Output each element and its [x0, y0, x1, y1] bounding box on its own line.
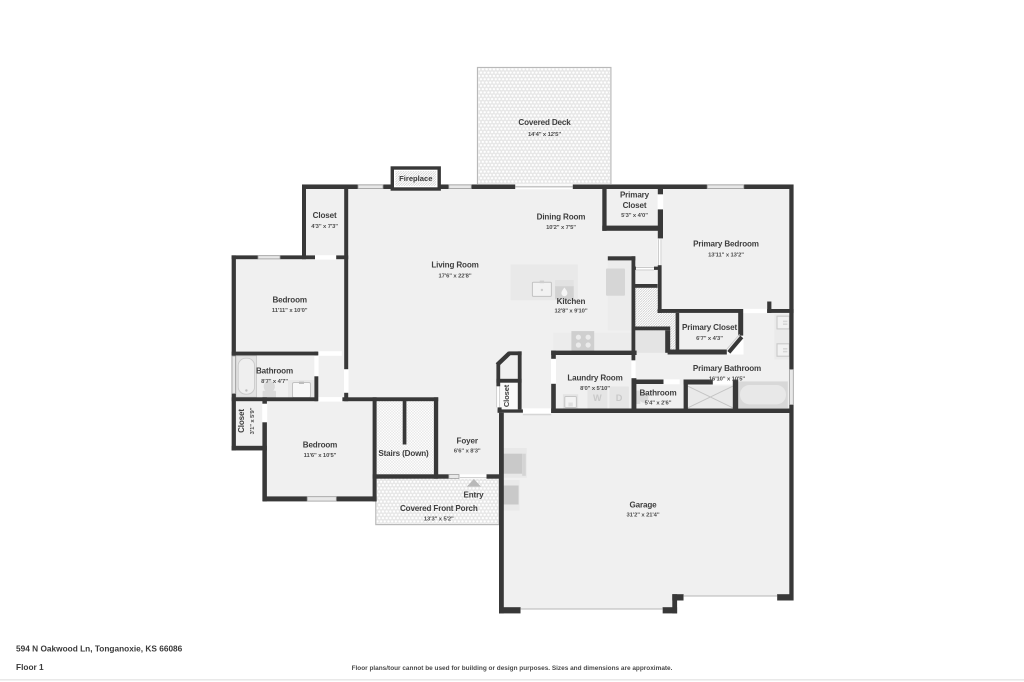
svg-text:Bedroom: Bedroom: [303, 441, 337, 450]
svg-text:594 N Oakwood Ln, Tonganoxie,: 594 N Oakwood Ln, Tonganoxie, KS 66086: [16, 644, 183, 654]
svg-text:13'11" x 13'2": 13'11" x 13'2": [708, 253, 744, 259]
svg-text:Primary: Primary: [620, 191, 650, 200]
svg-text:Foyer: Foyer: [457, 437, 479, 446]
svg-text:D: D: [616, 393, 623, 403]
svg-text:14'4" x 12'5": 14'4" x 12'5": [528, 132, 561, 138]
svg-text:11'11" x 10'0": 11'11" x 10'0": [272, 308, 308, 314]
svg-text:Floor 1: Floor 1: [16, 662, 44, 672]
svg-text:Closet: Closet: [502, 384, 511, 407]
svg-text:Floor plans/tour cannot be use: Floor plans/tour cannot be used for buil…: [352, 665, 673, 672]
svg-text:Fireplace: Fireplace: [399, 174, 432, 183]
svg-text:Garage: Garage: [630, 501, 658, 510]
svg-text:8'7" x 4'7": 8'7" x 4'7": [261, 379, 288, 385]
svg-text:8'0" x 5'10": 8'0" x 5'10": [580, 386, 610, 392]
svg-text:Closet: Closet: [237, 409, 246, 433]
svg-text:Stairs (Down): Stairs (Down): [378, 449, 429, 458]
svg-text:Covered Front Porch: Covered Front Porch: [400, 504, 478, 513]
svg-text:5'4" x 2'6": 5'4" x 2'6": [645, 401, 672, 407]
svg-text:16'10" x 10'5": 16'10" x 10'5": [709, 377, 745, 383]
svg-text:10'2" x 7'5": 10'2" x 7'5": [546, 225, 576, 231]
svg-text:4'3" x 7'3": 4'3" x 7'3": [311, 224, 338, 230]
svg-text:Primary Bathroom: Primary Bathroom: [693, 364, 761, 373]
svg-text:Entry: Entry: [464, 491, 485, 500]
svg-text:6'7" x 4'3": 6'7" x 4'3": [696, 336, 723, 342]
svg-text:Closet: Closet: [313, 211, 337, 220]
svg-text:13'3" x 5'2": 13'3" x 5'2": [424, 517, 454, 523]
svg-text:Primary Bedroom: Primary Bedroom: [693, 240, 759, 249]
svg-text:3'1" x 5'9": 3'1" x 5'9": [250, 407, 256, 434]
svg-text:W: W: [593, 393, 602, 403]
svg-text:31'2" x 21'4": 31'2" x 21'4": [626, 513, 659, 519]
svg-text:Bedroom: Bedroom: [272, 296, 306, 305]
svg-text:11'6" x 10'5": 11'6" x 10'5": [304, 453, 337, 459]
svg-text:Kitchen: Kitchen: [557, 297, 586, 306]
svg-text:Covered Deck: Covered Deck: [518, 118, 571, 127]
svg-text:17'6" x 22'8": 17'6" x 22'8": [438, 274, 471, 280]
svg-text:Laundry Room: Laundry Room: [567, 374, 622, 383]
svg-text:6'6" x 8'3": 6'6" x 8'3": [454, 449, 481, 455]
svg-text:Closet: Closet: [623, 201, 647, 210]
svg-text:Dining Room: Dining Room: [537, 213, 586, 222]
svg-text:Primary Closet: Primary Closet: [682, 323, 737, 332]
svg-text:Bathroom: Bathroom: [639, 389, 676, 398]
svg-text:12'8" x 9'10": 12'8" x 9'10": [554, 309, 587, 315]
svg-text:Living Room: Living Room: [431, 261, 478, 270]
svg-text:5'3" x 4'0": 5'3" x 4'0": [621, 213, 648, 219]
svg-text:Bathroom: Bathroom: [256, 367, 293, 376]
